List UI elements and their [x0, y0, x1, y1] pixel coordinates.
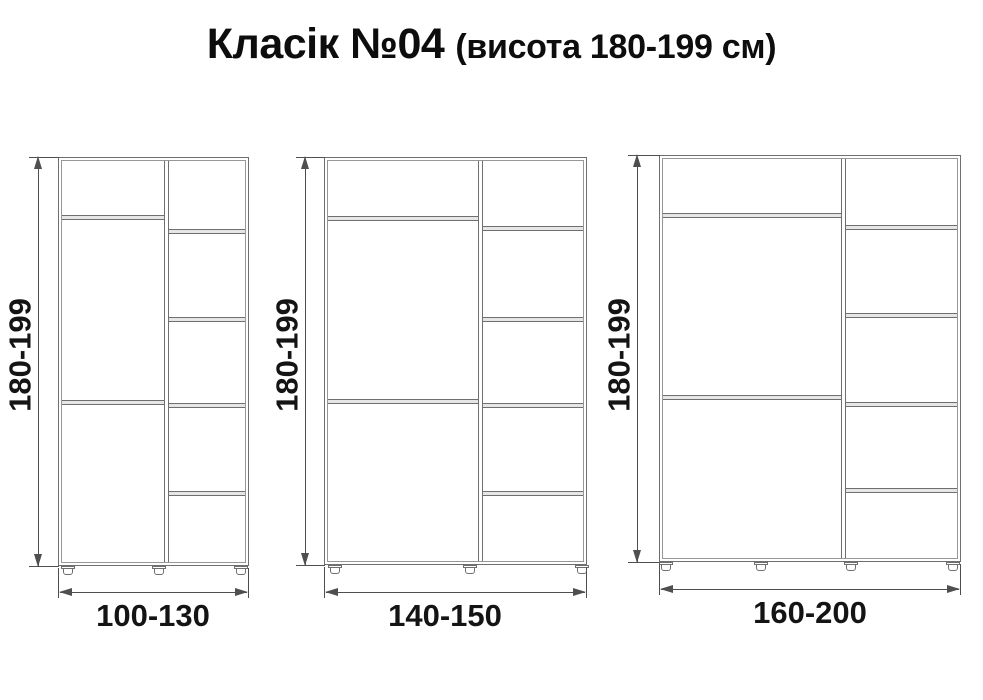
height-dimension-label: 180-199	[5, 298, 36, 412]
dimension-arrow-right-icon	[573, 588, 586, 596]
cabinet-divider-panel	[164, 161, 169, 562]
dimension-arrow-up-icon	[301, 156, 309, 169]
dimension-arrow-right-icon	[235, 588, 248, 596]
cabinet-foot	[756, 564, 766, 571]
right-column-shelf	[846, 402, 957, 407]
left-section-shelf	[328, 216, 478, 221]
width-dimension-label: 160-200	[753, 597, 867, 628]
width-dimension-label: 100-130	[96, 600, 210, 631]
height-dimension-line	[38, 159, 39, 566]
dimension-arrow-right-icon	[947, 585, 960, 593]
dimension-extension-line-right	[248, 568, 249, 598]
cabinet-foot	[661, 564, 671, 571]
left-section-shelf	[62, 400, 164, 405]
left-section-shelf	[663, 395, 841, 400]
right-column-shelf	[169, 403, 245, 408]
height-dimension-line	[637, 157, 638, 562]
right-column-shelf	[846, 225, 957, 230]
cabinet-foot	[465, 567, 475, 574]
right-column-shelf	[169, 317, 245, 322]
cabinet-foot	[63, 568, 73, 575]
dimension-arrow-down-icon	[34, 554, 42, 567]
dimension-arrow-up-icon	[633, 154, 641, 167]
width-dimension-line	[661, 589, 959, 590]
right-column-shelf	[846, 313, 957, 318]
right-column-shelf	[483, 403, 583, 408]
height-dimension-label: 180-199	[272, 298, 303, 412]
right-column-shelf	[483, 491, 583, 496]
dimension-arrow-down-icon	[301, 553, 309, 566]
dimension-extension-line-right	[586, 567, 587, 598]
cabinet-foot	[948, 564, 958, 571]
cabinet-inner-outline	[662, 158, 958, 559]
dimension-arrow-down-icon	[633, 550, 641, 563]
right-column-shelf	[846, 488, 957, 493]
dimension-arrow-left-icon	[59, 588, 72, 596]
page-title-main: Класік №04	[207, 20, 445, 68]
diagram-canvas: Класік №04(висота 180-199 см) 180-199100…	[0, 0, 983, 700]
cabinet-divider-panel	[841, 159, 846, 558]
width-dimension-line	[326, 592, 585, 593]
dimension-arrow-left-icon	[325, 588, 338, 596]
dimension-arrow-left-icon	[660, 585, 673, 593]
width-dimension-line	[60, 592, 247, 593]
height-dimension-label: 180-199	[604, 298, 635, 412]
height-dimension-line	[305, 159, 306, 565]
width-dimension-label: 140-150	[388, 600, 502, 631]
cabinet-inner-outline	[61, 160, 246, 563]
page-title-subtitle: (висота 180-199 см)	[455, 28, 776, 66]
right-column-shelf	[483, 317, 583, 322]
cabinet-divider-panel	[478, 161, 483, 561]
dimension-extension-line-right	[960, 564, 961, 595]
right-column-shelf	[483, 226, 583, 231]
left-section-shelf	[62, 215, 164, 220]
right-column-shelf	[169, 491, 245, 496]
cabinet-foot	[236, 568, 246, 575]
cabinet-foot	[846, 564, 856, 571]
dimension-arrow-up-icon	[34, 156, 42, 169]
left-section-shelf	[663, 213, 841, 218]
cabinet-foot	[154, 568, 164, 575]
cabinet-foot	[330, 567, 340, 574]
left-section-shelf	[328, 399, 478, 404]
right-column-shelf	[169, 229, 245, 234]
page-title: Класік №04(висота 180-199 см)	[0, 20, 983, 69]
